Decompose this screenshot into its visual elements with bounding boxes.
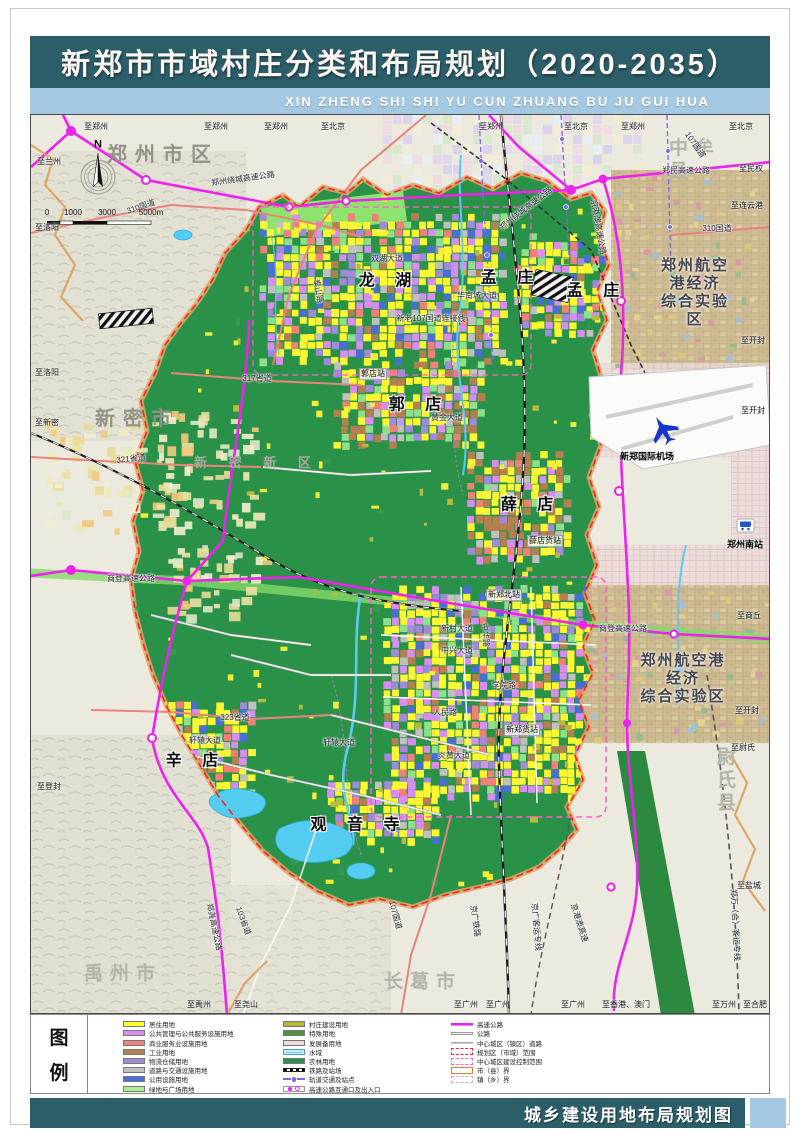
legend-swatch-fill	[123, 1086, 145, 1092]
footer-bar: 城乡建设用地布局规划图	[30, 1098, 745, 1128]
legend-item: 镇（乡）界	[451, 1076, 542, 1083]
subtitle-bar: XIN ZHENG SHI SHI YU CUN ZHUANG BU JU GU…	[30, 88, 770, 114]
footer-accent-square	[750, 1098, 786, 1128]
legend-item: 市（县）界	[451, 1067, 542, 1074]
legend-item: 规划区（市域）范围	[451, 1049, 542, 1056]
legend-title-char-1: 图	[49, 1023, 68, 1050]
legend-swatch-fill	[283, 1021, 305, 1027]
legend-swatch-fill	[283, 1030, 305, 1036]
legend-swatch-cityroad	[451, 1040, 473, 1046]
legend-title-char-2: 例	[49, 1058, 68, 1085]
legend-item: 中心城区建设控制范围	[451, 1058, 542, 1065]
legend-swatch-countybox	[451, 1067, 473, 1074]
legend-swatch-line	[451, 1021, 473, 1027]
legend-swatch-rail	[283, 1068, 305, 1072]
legend-item: 道路与交通设施用地	[123, 1067, 234, 1074]
legend-swatch-fill	[283, 1058, 305, 1064]
legend-swatch-fill	[123, 1030, 145, 1036]
legend-swatch-fill	[123, 1058, 145, 1064]
legend-box: 图 例 居住用地公共管理与公共服务设施用地商业服务业设施用地工业用地物流仓储用地…	[30, 1014, 770, 1094]
legend-item: 商业服务业设施用地	[123, 1039, 234, 1046]
legend-column-3: 高速公路公路中心城区（镇区）道路规划区（市域）范围中心城区建设控制范围市（县）界…	[451, 1021, 542, 1083]
legend-swatch-fill	[283, 1040, 305, 1046]
legend-item: 公路	[451, 1030, 542, 1037]
legend-column-2: 村庄建设用地特殊用地发展备用地水域农林用地铁路及站场轨道交通及站点高速公路互通口…	[283, 1021, 381, 1092]
page-subtitle: XIN ZHENG SHI SHI YU CUN ZHUANG BU JU GU…	[285, 94, 710, 109]
legend-item-label: 高速公路互通口及出入口	[309, 1084, 381, 1094]
legend-swatch-fill	[123, 1021, 145, 1027]
legend-swatch-water	[283, 1049, 305, 1055]
legend-swatch-fill	[123, 1040, 145, 1046]
legend-item: 绿地与广场用地	[123, 1085, 234, 1092]
legend-swatch-fill	[123, 1067, 145, 1073]
legend-swatch-dbox	[451, 1048, 473, 1055]
legend-item: 水域	[283, 1049, 381, 1056]
map-canvas: 郑州市区中牟县新密市新 密 新 区禹州市长葛市尉氏县郑州航空港经济 综合实验区郑…	[30, 114, 770, 1014]
legend-item: 农林用地	[283, 1058, 381, 1065]
legend-item: 村庄建设用地	[283, 1021, 381, 1028]
legend-item: 工业用地	[123, 1049, 234, 1056]
legend-title: 图 例	[31, 1015, 88, 1093]
legend-swatch-dbox	[451, 1058, 473, 1065]
legend-item: 居住用地	[123, 1021, 234, 1028]
map-image	[31, 115, 770, 1014]
legend-item: 特殊用地	[283, 1030, 381, 1037]
legend-item: 轨道交通及站点	[283, 1076, 381, 1083]
legend-swatch-fill	[123, 1076, 145, 1082]
legend-swatch-fill	[123, 1049, 145, 1055]
title-bar: 新郑市市域村庄分类和布局规划（2020-2035）	[30, 36, 770, 88]
legend-item: 高速公路	[451, 1021, 542, 1028]
legend-item: 物流仓储用地	[123, 1058, 234, 1065]
legend-item: 公用设施用地	[123, 1076, 234, 1083]
footer-title: 城乡建设用地布局规划图	[524, 1101, 733, 1126]
legend-column-1: 居住用地公共管理与公共服务设施用地商业服务业设施用地工业用地物流仓储用地道路与交…	[123, 1021, 234, 1092]
legend-swatch-interchange	[283, 1086, 305, 1092]
legend-item-label: 绿地与广场用地	[149, 1084, 195, 1094]
legend-item: 铁路及站场	[283, 1067, 381, 1074]
legend-item-label: 镇（乡）界	[477, 1074, 510, 1084]
legend-item: 公共管理与公共服务设施用地	[123, 1030, 234, 1037]
legend-item: 高速公路互通口及出入口	[283, 1085, 381, 1092]
legend-swatch-metro	[283, 1076, 305, 1082]
legend-swatch-townbox	[451, 1076, 473, 1083]
legend-item: 中心城区（镇区）道路	[451, 1039, 542, 1046]
planning-map-page: 新郑市市域村庄分类和布局规划（2020-2035） XIN ZHENG SHI …	[0, 0, 800, 1133]
scale-bar	[47, 221, 151, 225]
legend-swatch-roadline	[451, 1032, 473, 1035]
page-title: 新郑市市域村庄分类和布局规划（2020-2035）	[61, 41, 739, 83]
train-station-icon	[737, 519, 754, 532]
legend-item: 发展备用地	[283, 1039, 381, 1046]
